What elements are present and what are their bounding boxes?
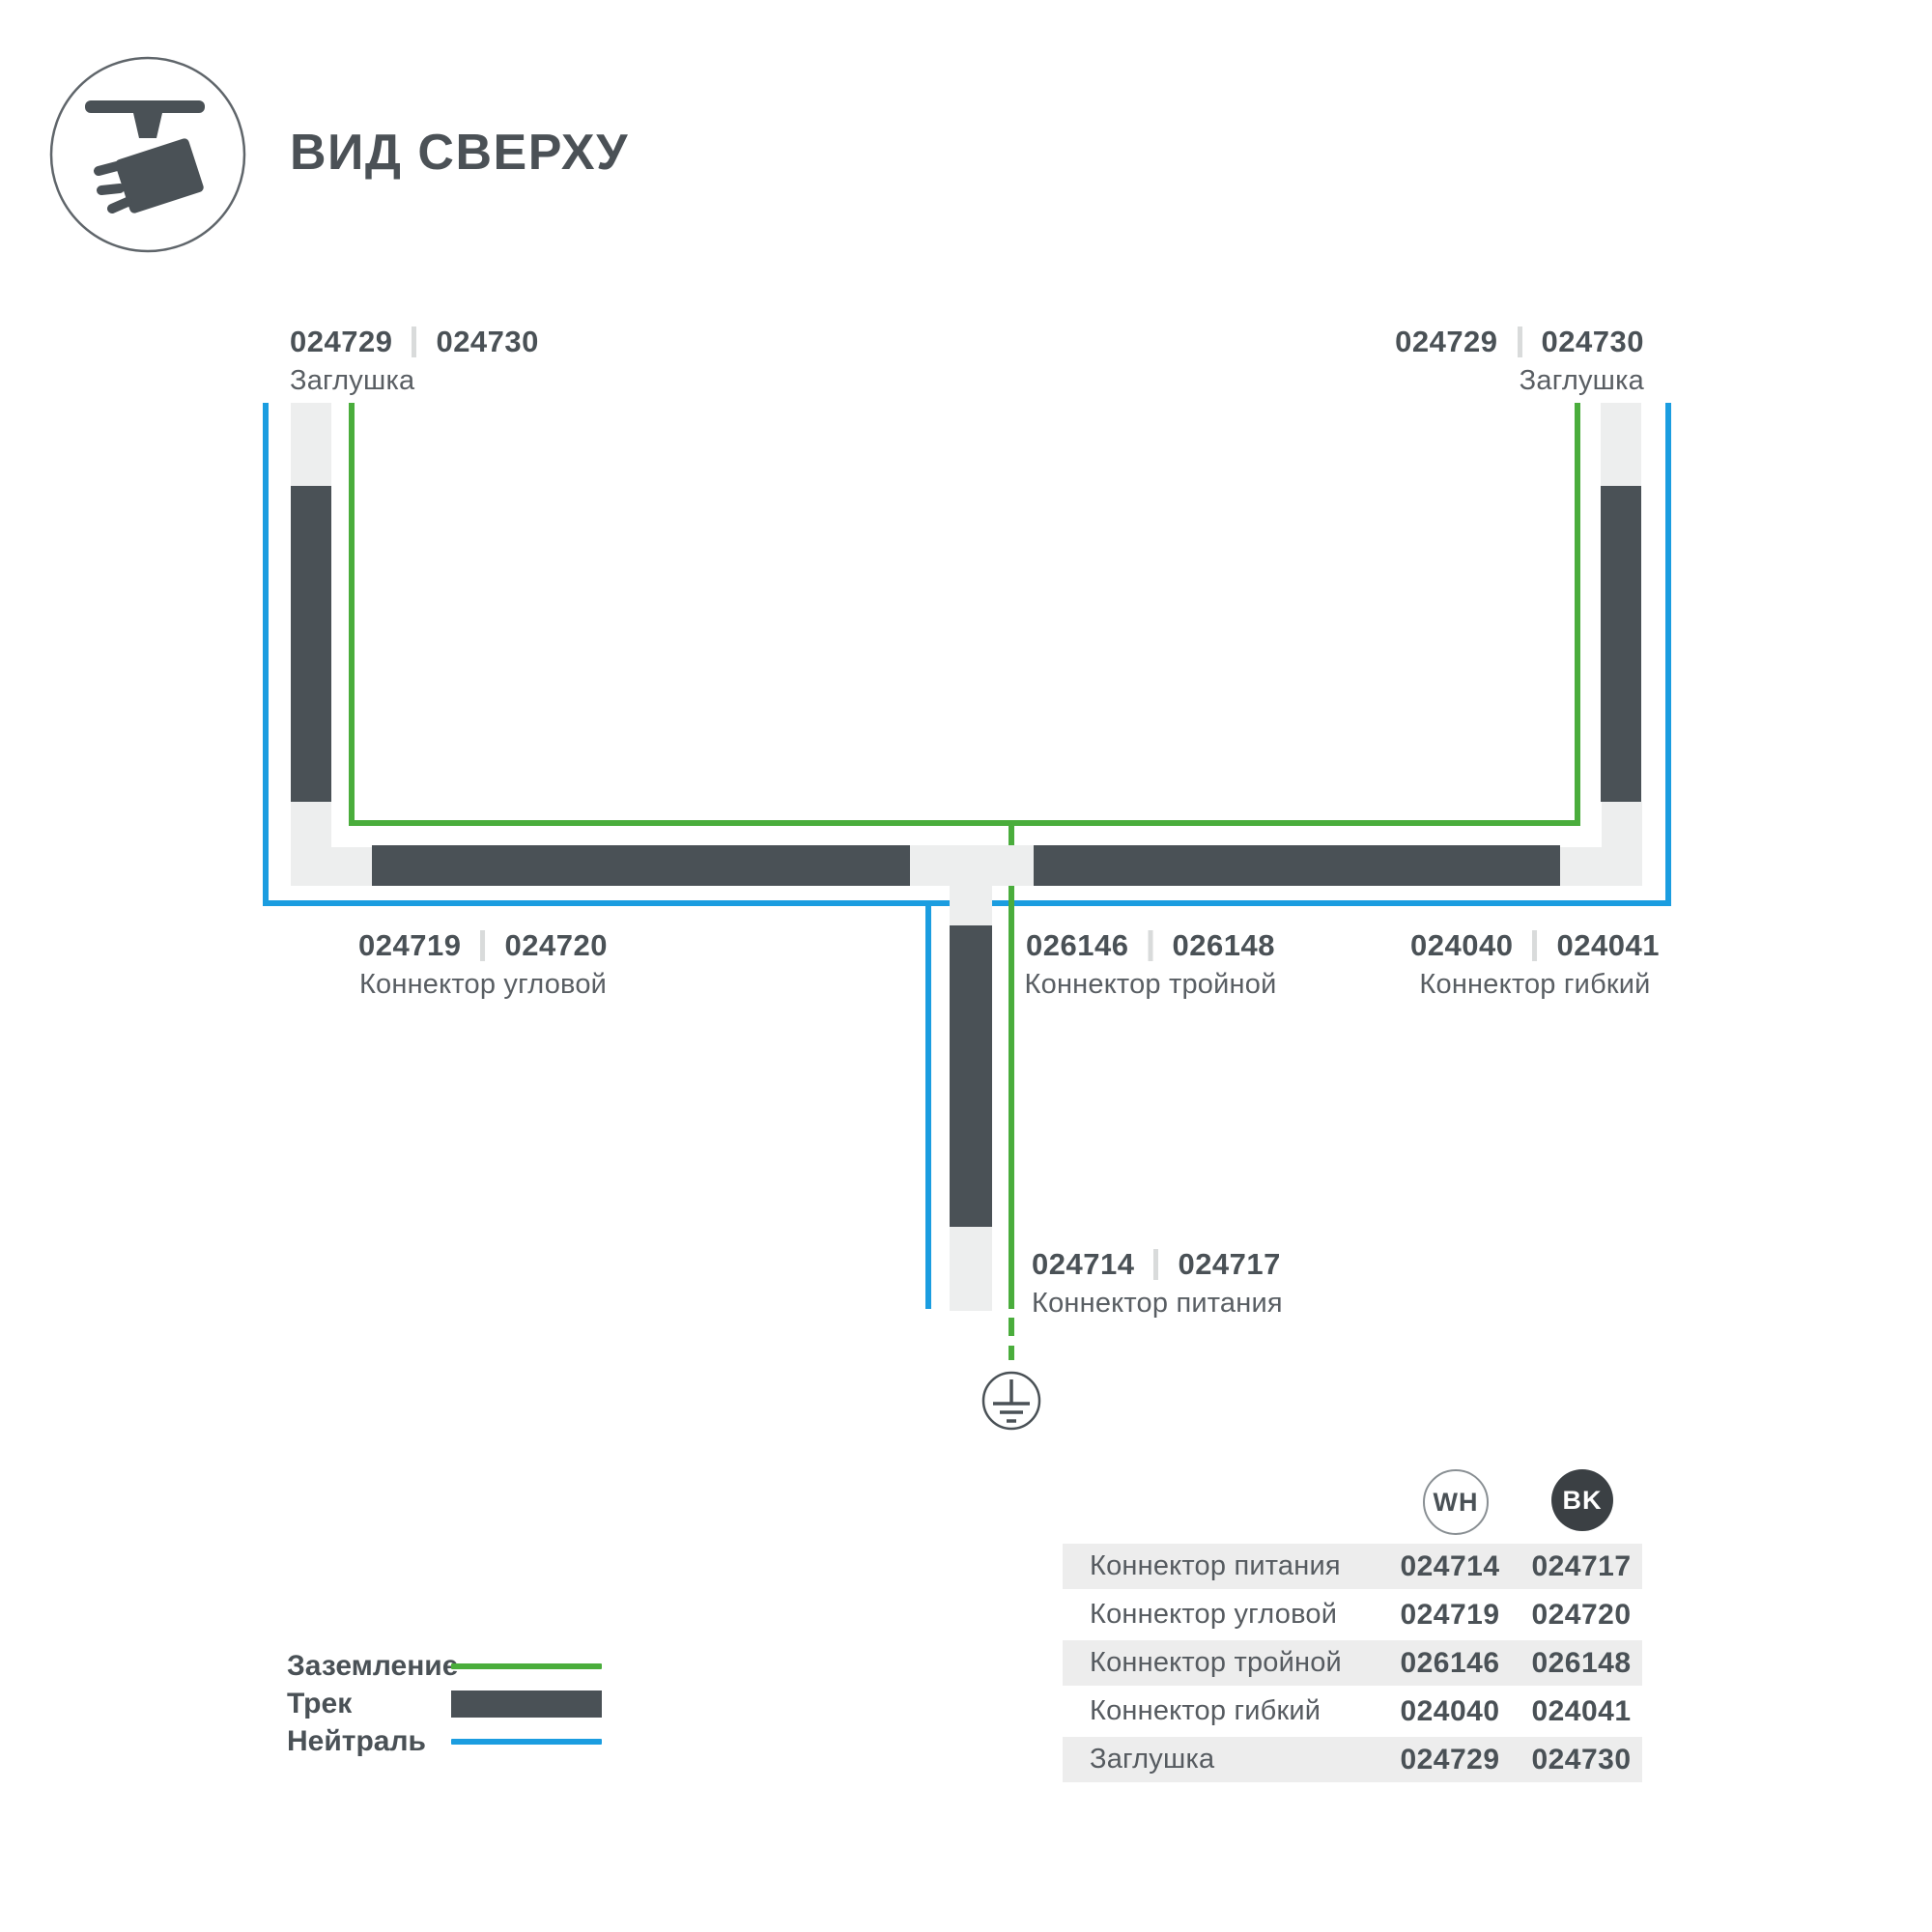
- part-name: Заглушка: [290, 365, 539, 397]
- track-spotlight-icon: [51, 58, 244, 251]
- row-code-bk: 024720: [1520, 1599, 1642, 1632]
- ground-icon: [983, 1373, 1039, 1429]
- row-code-bk: 026148: [1520, 1647, 1642, 1680]
- code-bk: 024717: [1178, 1247, 1280, 1282]
- label-triple-connector: 026146026148 Коннектор тройной: [1025, 928, 1277, 1001]
- row-code-bk: 024041: [1520, 1695, 1642, 1728]
- corner-connector-right-piece: [1560, 802, 1642, 886]
- label-endcap-left: 024729024730 Заглушка: [290, 325, 539, 397]
- code-divider: [1153, 1249, 1158, 1280]
- track-left-vertical: [291, 486, 331, 802]
- row-name: Коннектор гибкий: [1063, 1695, 1379, 1727]
- part-codes: 026146026148: [1025, 928, 1277, 963]
- code-bk: 024720: [505, 928, 608, 963]
- code-wh: 024714: [1032, 1247, 1134, 1282]
- code-wh: 024040: [1410, 928, 1513, 963]
- row-name: Заглушка: [1063, 1744, 1379, 1776]
- neutral-line-swatch: [451, 1739, 602, 1745]
- code-divider: [481, 930, 486, 961]
- row-name: Коннектор тройной: [1063, 1647, 1379, 1679]
- legend-label: Нейтраль: [287, 1725, 451, 1758]
- code-divider: [1518, 327, 1522, 357]
- track-right-vertical: [1601, 486, 1641, 802]
- code-wh: 024729: [1395, 325, 1497, 359]
- legend-item-neutral: Нейтраль: [287, 1722, 602, 1760]
- column-header-white: WH: [1423, 1469, 1489, 1535]
- code-wh: 024719: [358, 928, 461, 963]
- row-code-wh: 026146: [1379, 1647, 1520, 1680]
- code-bk: 024041: [1557, 928, 1660, 963]
- part-name: Коннектор гибкий: [1410, 969, 1660, 1001]
- legend: Заземление Трек Нейтраль: [287, 1647, 602, 1760]
- part-codes: 024729024730: [290, 325, 539, 359]
- part-codes: 024040024041: [1410, 928, 1660, 963]
- table-row: Коннектор угловой 024719 024720: [1063, 1592, 1642, 1637]
- part-name: Коннектор угловой: [358, 969, 608, 1001]
- row-name: Коннектор питания: [1063, 1550, 1379, 1582]
- table-row: Заглушка 024729 024730: [1063, 1737, 1642, 1782]
- label-flexible-connector: 024040024041 Коннектор гибкий: [1410, 928, 1660, 1001]
- code-bk: 024730: [1542, 325, 1644, 359]
- endcap-right-piece: [1601, 403, 1641, 486]
- code-bk: 024730: [436, 325, 538, 359]
- code-wh: 024729: [290, 325, 392, 359]
- label-endcap-right: 024729024730 Заглушка: [1395, 325, 1644, 397]
- table-row: Коннектор гибкий 024040 024041: [1063, 1689, 1642, 1734]
- column-header-black: BK: [1551, 1469, 1613, 1531]
- legend-label: Трек: [287, 1688, 451, 1720]
- row-code-bk: 024730: [1520, 1744, 1642, 1776]
- code-wh: 026146: [1026, 928, 1128, 963]
- legend-item-ground: Заземление: [287, 1647, 602, 1685]
- row-code-wh: 024040: [1379, 1695, 1520, 1728]
- track-bar-swatch: [451, 1690, 602, 1718]
- track-stem-vertical: [950, 925, 992, 1227]
- corner-connector-piece: [291, 802, 372, 886]
- endcap-left-piece: [291, 403, 331, 486]
- label-power-connector: 024714024717 Коннектор питания: [1032, 1247, 1283, 1320]
- track-top-right-horizontal: [1034, 845, 1560, 886]
- code-divider: [1148, 930, 1152, 961]
- spec-table: Коннектор питания 024714 024717 Коннекто…: [1063, 1544, 1642, 1785]
- part-name: Коннектор тройной: [1025, 969, 1277, 1001]
- row-code-wh: 024719: [1379, 1599, 1520, 1632]
- ground-line-swatch: [451, 1663, 602, 1669]
- code-bk: 026148: [1172, 928, 1274, 963]
- part-codes: 024729024730: [1395, 325, 1644, 359]
- row-code-wh: 024729: [1379, 1744, 1520, 1776]
- legend-label: Заземление: [287, 1650, 451, 1683]
- part-codes: 024714024717: [1032, 1247, 1283, 1282]
- power-connector-piece: [950, 1227, 992, 1311]
- table-row: Коннектор питания 024714 024717: [1063, 1544, 1642, 1589]
- part-codes: 024719024720: [358, 928, 608, 963]
- legend-item-track: Трек: [287, 1685, 602, 1722]
- label-corner-connector: 024719024720 Коннектор угловой: [358, 928, 608, 1001]
- row-code-wh: 024714: [1379, 1550, 1520, 1583]
- part-name: Заглушка: [1395, 365, 1644, 397]
- code-divider: [412, 327, 416, 357]
- row-name: Коннектор угловой: [1063, 1599, 1379, 1631]
- table-row: Коннектор тройной 026146 026148: [1063, 1640, 1642, 1686]
- code-divider: [1533, 930, 1538, 961]
- part-name: Коннектор питания: [1032, 1288, 1283, 1320]
- track-top-left-horizontal: [372, 845, 910, 886]
- row-code-bk: 024717: [1520, 1550, 1642, 1583]
